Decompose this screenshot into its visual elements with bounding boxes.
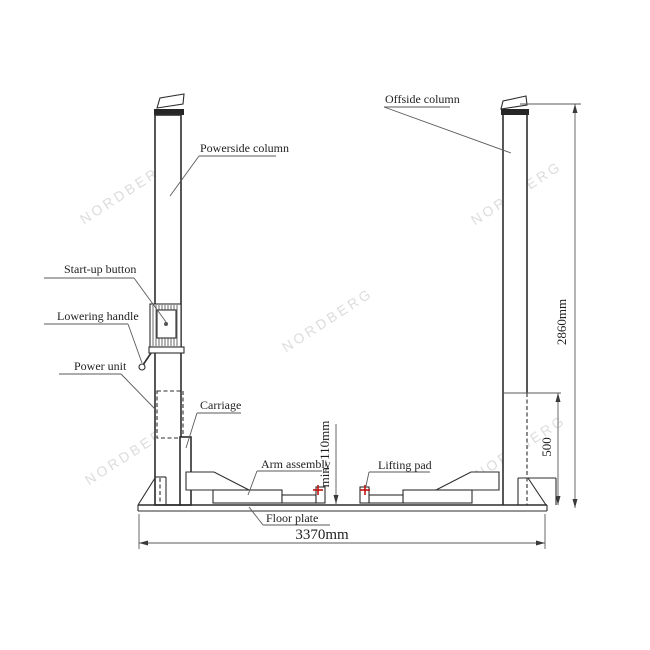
label-offside-column: Offside column [385,92,460,106]
base-dimension-text: 500 [539,437,554,457]
watermark-text: NORDBERG [279,285,376,356]
min-height-dimension-text: min=110mm [317,421,332,488]
callout-powerside-column: Powerside column [170,141,289,196]
lift-technical-drawing: NORDBERG NORDBERG NORDBERG NORDBERG NORD… [0,0,650,650]
arm-extension [282,495,316,503]
handle-knob [139,364,145,370]
width-dimension-text: 3370mm [295,527,349,543]
carriage [180,437,191,505]
control-box-bracket [149,347,184,353]
arm-inner [213,490,282,503]
label-arm-assembly: Arm assembly [261,457,331,471]
callout-carriage: Carriage [186,398,241,448]
column-top-plate [501,96,527,109]
floor-plate [138,505,547,511]
handle-lever [143,353,151,365]
label-carriage: Carriage [200,398,241,412]
arm-inner [403,490,472,503]
dimension-overall-width: 3370mm [139,514,545,549]
callout-offside-column: Offside column [384,92,511,153]
control-box [149,304,184,353]
label-power-unit: Power unit [74,359,127,373]
two-post-lift-diagram: NORDBERG NORDBERG NORDBERG NORDBERG NORD… [0,0,650,650]
arm-assembly-right [360,472,499,503]
label-floor-plate: Floor plate [266,511,318,525]
label-powerside-column: Powerside column [200,141,289,155]
height-dimension-text: 2860mm [554,299,569,345]
label-startup-button: Start-up button [64,262,136,276]
callout-floor-plate: Floor plate [249,507,330,525]
arm-extension [369,495,403,503]
callout-lifting-pad: Lifting pad [366,458,432,486]
label-lowering-handle: Lowering handle [57,309,139,323]
startup-button-dot [164,322,168,326]
arm-assembly-left [186,472,325,503]
column-top-plate [157,94,184,108]
arm-shoulder [186,472,249,490]
label-lifting-pad: Lifting pad [378,458,432,472]
column-fill [503,110,527,505]
offside-column [501,96,529,505]
column-cap [501,109,529,115]
callout-lowering-handle: Lowering handle [44,309,142,363]
column-cap [154,109,184,115]
arm-shoulder [436,472,499,490]
lowering-handle [139,353,151,370]
